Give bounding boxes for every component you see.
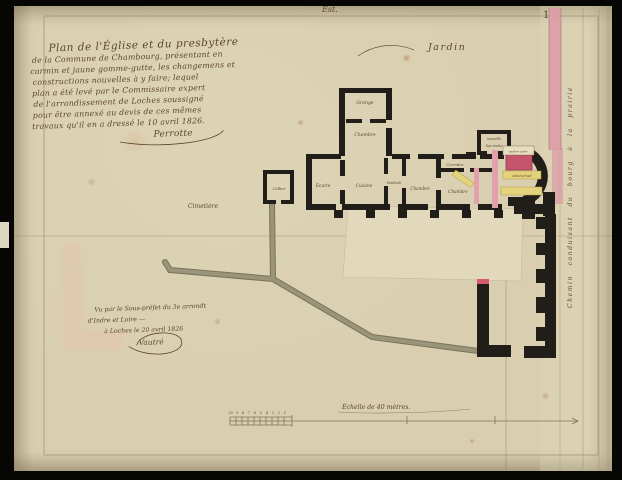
label-sacristie-1: nouvelle	[487, 137, 502, 141]
label-ecurie: Écurie	[315, 183, 331, 189]
presbytere-walls	[263, 88, 511, 218]
label-est: Est.	[321, 5, 338, 14]
jardin-flourish	[358, 45, 414, 56]
visa-line: Vu par le Sous-préfet du 3e arrondt	[94, 303, 206, 314]
label-cellier: Cellier	[273, 186, 286, 191]
label-chambre-est: Chambre	[448, 189, 468, 194]
label-sacristie-2: Sacristie	[486, 143, 504, 148]
title-signature: Perrotte	[152, 128, 192, 139]
label-corridor: Corridor	[446, 162, 465, 167]
label-autel-actuel: autel actuel	[512, 174, 531, 178]
scale-number: 5	[260, 411, 262, 415]
title-block: Plan de l'Église et du presbytère de la …	[29, 34, 242, 149]
label-cuisine: Cuisine	[356, 184, 373, 189]
visa-line: d'Indre et Loire —	[88, 316, 146, 325]
scale-numbers: 10 9 8 7 6 5 4 3 2 1	[229, 411, 286, 415]
label-chambre-nord: Chambre	[354, 132, 376, 138]
scale-bar	[230, 415, 578, 427]
scale-number: 6	[254, 411, 257, 415]
scale-number: 7	[248, 411, 251, 415]
label-cimetiere: Cimetière	[188, 203, 218, 210]
scale-number: 2	[277, 411, 280, 415]
scale-number: 8	[242, 411, 245, 415]
page-number: 1	[543, 10, 549, 21]
chemin-pink-band	[549, 8, 563, 204]
scale-number: 10	[229, 411, 234, 415]
label-grange: Grange	[356, 100, 374, 106]
label-jardin: Jardin	[426, 42, 466, 53]
label-chambre-centre: Chambre	[410, 186, 430, 191]
label-maitre-autel: maître autel	[509, 150, 528, 154]
scale-caption: Échelle de 40 mètres.	[341, 403, 410, 411]
maitre-autel-block	[506, 155, 532, 170]
scanned-plan-sheet: Plan de l'Église et du presbytère de la …	[0, 0, 622, 480]
label-chemin: Chemin conduisant du bourg à la prairie	[567, 86, 574, 308]
scale-number: 3	[272, 411, 274, 415]
scale-number: 9	[236, 411, 239, 415]
visa-block: Vu par le Sous-préfet du 3e arrondt d'In…	[87, 303, 208, 357]
scale-number: 1	[284, 411, 286, 415]
scale-number: 4	[265, 411, 268, 415]
label-vestibule: Vestibule	[387, 181, 402, 185]
scale-caption-group: Échelle de 40 mètres.	[338, 403, 470, 413]
plan-drawing: Plan de l'Église et du presbytère de la …	[0, 0, 622, 480]
